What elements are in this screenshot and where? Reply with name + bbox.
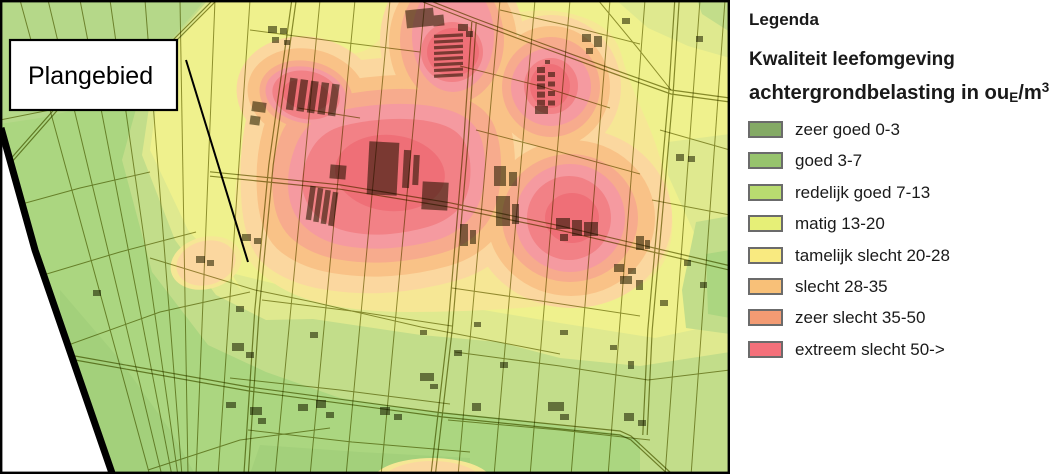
svg-text:Plangebied: Plangebied (28, 62, 153, 90)
